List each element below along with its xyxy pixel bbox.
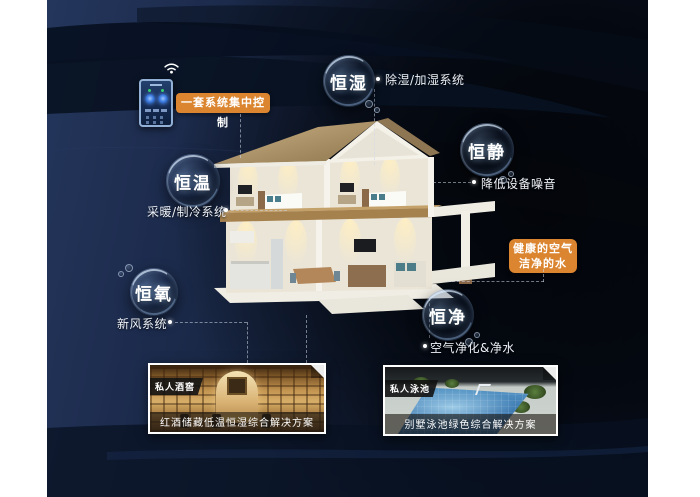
note-bullet: [224, 208, 228, 212]
tiny-bubble-icon: [125, 264, 133, 272]
tiny-bubble-icon: [474, 332, 480, 338]
wine-photo-tag: 私人酒窖: [150, 378, 203, 395]
smart-control-panel: [139, 79, 173, 127]
connector-oxygen-to-photo: [247, 322, 248, 363]
bubble-constant-quiet-label: 恒静: [468, 138, 506, 163]
wine-cellar-picture-frame: [227, 377, 247, 395]
panel-dial-right: [158, 94, 168, 104]
connector-control-to-house: [240, 114, 241, 158]
corner-fold-icon: [311, 365, 324, 378]
pool-photo-caption: 别墅泳池绿色综合解决方案: [385, 414, 556, 434]
bubble-constant-purity: 恒净: [422, 289, 474, 341]
panel-stat: [145, 109, 151, 112]
infographic-canvas: 一套系统集中控制 健康的空气 洁净的水 恒湿 恒静 恒温 恒氧 恒净: [0, 0, 700, 497]
tiny-bubble-icon: [365, 100, 373, 108]
pool-photo: 私人泳池 别墅泳池绿色综合解决方案: [383, 365, 558, 436]
wine-photo-caption: 红酒储藏低温恒湿综合解决方案: [150, 412, 324, 432]
note-oxygen-system: 新风系统: [117, 315, 167, 332]
tiny-bubble-icon: [374, 107, 380, 113]
pool-plant: [445, 379, 459, 388]
bubble-constant-quiet: 恒静: [460, 123, 514, 177]
connector-temperature-to-house: [231, 210, 287, 211]
note-purity-system: 空气净化&净水: [430, 339, 515, 356]
panel-status-led: [148, 89, 151, 92]
connector-humidity-to-house: [374, 89, 375, 165]
bubble-constant-temperature-label: 恒温: [174, 169, 212, 194]
panel-dial-left: [145, 94, 155, 104]
panel-key: [146, 121, 149, 124]
bubble-constant-oxygen-label: 恒氧: [135, 280, 173, 305]
connector-quiet-to-house: [433, 182, 471, 183]
note-bullet: [472, 180, 476, 184]
panel-key: [146, 116, 149, 119]
healthy-air-line: 健康的空气: [509, 241, 577, 256]
pool-plant: [524, 385, 546, 399]
wine-cellar-photo: 私人酒窖 红酒储藏低温恒湿综合解决方案: [148, 363, 326, 434]
tiny-bubble-icon: [118, 271, 124, 277]
dark-backdrop: 一套系统集中控制 健康的空气 洁净的水 恒湿 恒静 恒温 恒氧 恒净: [47, 0, 648, 497]
note-bullet: [423, 344, 427, 348]
note-humidity-system: 除湿/加湿系统: [385, 71, 465, 88]
note-bullet: [168, 320, 172, 324]
connector-airbox-to-house: [447, 281, 544, 282]
connector-house-to-wine-photo: [306, 315, 307, 363]
bubble-constant-humidity-label: 恒湿: [330, 69, 368, 94]
panel-status-led: [161, 89, 164, 92]
panel-key: [160, 121, 163, 124]
panel-stat: [161, 109, 167, 112]
note-bullet: [376, 77, 380, 81]
panel-key: [153, 116, 156, 119]
central-control-label: 一套系统集中控制: [176, 93, 270, 113]
house-cutaway-illustration: [200, 105, 495, 320]
wifi-icon: [163, 61, 180, 74]
pool-photo-tag: 私人泳池: [385, 380, 438, 397]
bubble-constant-temperature: 恒温: [166, 154, 220, 208]
corner-fold-icon: [543, 367, 556, 380]
connector-oxygen-right: [175, 322, 247, 323]
note-temperature-system: 采暖/制冷系统: [147, 203, 227, 220]
bubble-constant-purity-label: 恒净: [429, 303, 467, 328]
panel-key: [153, 121, 156, 124]
panel-stat: [153, 109, 159, 112]
note-quiet-system: 降低设备噪音: [481, 175, 556, 192]
bubble-constant-oxygen: 恒氧: [130, 268, 178, 316]
healthy-air-water-box: 健康的空气 洁净的水: [509, 239, 577, 273]
panel-title-bar: [150, 84, 162, 86]
panel-key: [160, 116, 163, 119]
